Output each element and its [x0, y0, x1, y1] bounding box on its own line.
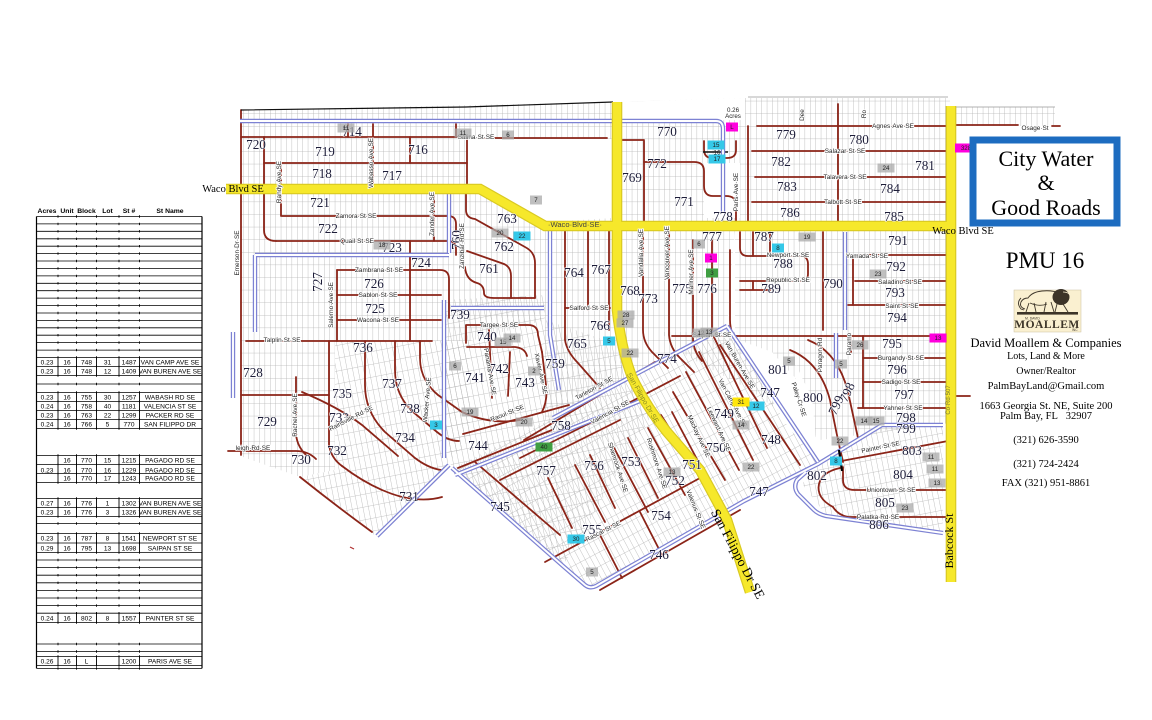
svg-text:2: 2: [532, 368, 536, 375]
svg-text:31: 31: [738, 399, 745, 406]
svg-text:16: 16: [63, 359, 71, 366]
svg-text:Dee: Dee: [799, 109, 806, 121]
svg-text:8: 8: [106, 615, 110, 622]
svg-text:11: 11: [343, 125, 350, 132]
svg-text:Lot: Lot: [102, 208, 113, 215]
svg-text:3: 3: [106, 509, 110, 516]
svg-text:VAN BUREN AVE SE: VAN BUREN AVE SE: [139, 368, 202, 375]
svg-text:761: 761: [479, 261, 499, 276]
svg-text:769: 769: [622, 170, 642, 185]
svg-text:0.23: 0.23: [41, 467, 54, 474]
svg-text:764: 764: [564, 265, 584, 280]
svg-text:&: &: [1037, 170, 1054, 195]
svg-text:Targee·St·SE: Targee·St·SE: [480, 322, 518, 329]
svg-text:1243: 1243: [122, 475, 137, 482]
svg-text:16: 16: [63, 545, 71, 552]
svg-text:Yamada·St·SE: Yamada·St·SE: [846, 253, 888, 260]
svg-text:758: 758: [81, 403, 92, 410]
svg-text:Wabasso·Ave·SE: Wabasso·Ave·SE: [368, 138, 375, 188]
svg-text:776: 776: [697, 281, 717, 296]
svg-text:David Moallem & Companies: David Moallem & Companies: [970, 336, 1121, 350]
svg-text:5: 5: [106, 421, 110, 428]
svg-text:Paragon·Rd: Paragon·Rd: [817, 337, 824, 372]
svg-text:746: 746: [649, 547, 669, 562]
svg-text:1557: 1557: [122, 615, 137, 622]
svg-text:16: 16: [104, 467, 112, 474]
svg-text:6: 6: [697, 241, 701, 248]
svg-text:737: 737: [382, 376, 402, 391]
svg-text:17: 17: [714, 156, 721, 163]
svg-text:755: 755: [81, 394, 92, 401]
svg-text:15: 15: [713, 142, 720, 149]
svg-text:783: 783: [777, 179, 797, 194]
svg-text:747: 747: [749, 484, 769, 499]
svg-text:1299: 1299: [122, 412, 137, 419]
svg-text:731: 731: [399, 489, 419, 504]
svg-text:787: 787: [754, 229, 774, 244]
svg-text:St #: St #: [123, 208, 136, 215]
svg-text:16: 16: [63, 658, 71, 665]
svg-text:leigh·Rd·SE: leigh·Rd·SE: [236, 445, 270, 452]
svg-text:14: 14: [738, 422, 745, 429]
svg-text:5: 5: [607, 338, 611, 345]
svg-text:1487: 1487: [122, 359, 137, 366]
svg-text:Salazar·St·SE: Salazar·St·SE: [825, 148, 866, 155]
svg-text:0.23: 0.23: [41, 535, 54, 542]
svg-text:727: 727: [310, 272, 325, 292]
svg-text:MOALLEM: MOALLEM: [1014, 319, 1079, 331]
svg-text:795: 795: [882, 336, 902, 351]
svg-text:0.23: 0.23: [41, 359, 54, 366]
svg-text:19: 19: [804, 234, 811, 241]
svg-text:16: 16: [63, 615, 71, 622]
svg-text:0.27: 0.27: [41, 500, 54, 507]
svg-text:13: 13: [706, 329, 713, 336]
svg-text:SAIPAN ST SE: SAIPAN ST SE: [148, 545, 193, 552]
svg-text:24: 24: [883, 165, 890, 172]
svg-text:0.24: 0.24: [41, 421, 54, 428]
svg-text:786: 786: [780, 205, 800, 220]
svg-text:16: 16: [63, 535, 71, 542]
svg-text:782: 782: [771, 154, 791, 169]
svg-text:744: 744: [468, 438, 488, 453]
svg-text:PACKER RD SE: PACKER RD SE: [146, 412, 195, 419]
svg-text:794: 794: [887, 310, 907, 325]
svg-text:751: 751: [682, 457, 702, 472]
svg-text:VAN CAMP AVE SE: VAN CAMP AVE SE: [141, 359, 200, 366]
svg-text:(321) 724-2424: (321) 724-2424: [1013, 459, 1079, 470]
svg-text:31: 31: [104, 359, 112, 366]
svg-text:0.23: 0.23: [41, 368, 54, 375]
svg-text:739: 739: [450, 307, 470, 322]
svg-text:Wacona·St·SE: Wacona·St·SE: [357, 317, 399, 324]
svg-text:804: 804: [893, 467, 913, 482]
svg-text:777: 777: [702, 229, 722, 244]
svg-text:0.26: 0.26: [41, 658, 54, 665]
svg-text:30: 30: [573, 536, 580, 543]
svg-text:16: 16: [63, 467, 71, 474]
svg-text:771: 771: [674, 194, 694, 209]
svg-text:805: 805: [875, 495, 895, 510]
svg-text:773: 773: [638, 291, 658, 306]
svg-text:13: 13: [104, 545, 112, 552]
svg-text:784: 784: [880, 181, 900, 196]
svg-text:22: 22: [837, 438, 844, 445]
svg-text:L: L: [85, 658, 89, 665]
svg-text:Mariner·Ave·SE: Mariner·Ave·SE: [688, 249, 695, 294]
svg-text:748: 748: [761, 432, 781, 447]
svg-text:Palatka·Rd·SE: Palatka·Rd·SE: [857, 514, 899, 521]
svg-text:753: 753: [621, 454, 641, 469]
svg-text:1: 1: [106, 500, 110, 507]
svg-text:1302: 1302: [122, 500, 137, 507]
svg-text:Good Roads: Good Roads: [991, 195, 1100, 220]
svg-text:PAGADO RD SE: PAGADO RD SE: [145, 467, 195, 474]
svg-text:1200: 1200: [122, 658, 137, 665]
svg-text:40: 40: [104, 403, 112, 410]
svg-text:763: 763: [497, 211, 517, 226]
svg-text:0.23: 0.23: [41, 509, 54, 516]
svg-text:1541: 1541: [122, 535, 137, 542]
svg-text:3: 3: [710, 270, 714, 277]
svg-text:L: L: [730, 124, 734, 131]
svg-text:18: 18: [379, 242, 386, 249]
svg-text:14: 14: [861, 418, 868, 425]
svg-text:Salerno·Ave·SE: Salerno·Ave·SE: [328, 282, 335, 328]
svg-text:787: 787: [81, 535, 92, 542]
svg-text:Babcock St: Babcock St: [942, 513, 956, 569]
svg-text:759: 759: [545, 356, 565, 371]
svg-text:11: 11: [460, 130, 467, 137]
svg-text:Newport·St·SE: Newport·St·SE: [767, 252, 810, 259]
svg-text:Uniontown·St·SE: Uniontown·St·SE: [866, 487, 915, 494]
svg-text:Owner/Realtor: Owner/Realtor: [1016, 366, 1076, 377]
svg-text:16: 16: [63, 412, 71, 419]
svg-text:VAN BUREN AVE SE: VAN BUREN AVE SE: [139, 509, 202, 516]
svg-text:795: 795: [81, 545, 92, 552]
svg-text:792: 792: [886, 259, 906, 274]
svg-text:770: 770: [81, 467, 92, 474]
svg-text:Ro: Ro: [861, 109, 868, 118]
svg-text:PalmBayLand@Gmail.com: PalmBayLand@Gmail.com: [988, 381, 1105, 392]
svg-text:15: 15: [873, 418, 880, 425]
svg-text:8: 8: [106, 535, 110, 542]
svg-text:23: 23: [902, 505, 909, 512]
svg-text:VAN BUREN AVE SE: VAN BUREN AVE SE: [139, 500, 202, 507]
svg-text:778: 778: [713, 209, 733, 224]
svg-text:718: 718: [312, 166, 332, 181]
svg-text:5: 5: [787, 358, 791, 365]
svg-text:(321) 626-3590: (321) 626-3590: [1013, 435, 1079, 446]
svg-text:726: 726: [364, 276, 384, 291]
svg-text:13: 13: [935, 335, 942, 342]
svg-text:0.23: 0.23: [41, 412, 54, 419]
svg-text:PAGADO RD SE: PAGADO RD SE: [145, 475, 195, 482]
svg-text:Rachel·Ave·SE: Rachel·Ave·SE: [292, 393, 299, 437]
svg-text:743: 743: [515, 375, 535, 390]
svg-text:800: 800: [803, 390, 823, 405]
svg-text:22: 22: [519, 233, 526, 240]
svg-text:722: 722: [318, 221, 338, 236]
svg-text:30: 30: [104, 394, 112, 401]
svg-text:1257: 1257: [122, 394, 137, 401]
svg-text:1215: 1215: [122, 457, 137, 464]
svg-text:8: 8: [776, 245, 780, 252]
svg-text:28: 28: [623, 312, 630, 319]
svg-text:Acres: Acres: [725, 113, 741, 120]
svg-text:19: 19: [467, 409, 474, 416]
svg-text:NEWPORT ST SE: NEWPORT ST SE: [143, 535, 198, 542]
svg-text:0.23: 0.23: [41, 394, 54, 401]
svg-text:719: 719: [315, 144, 335, 159]
svg-text:Quail·St·SE: Quail·St·SE: [340, 238, 374, 245]
svg-text:Emerson·Dr·SE: Emerson·Dr·SE: [234, 230, 241, 275]
svg-text:Palm Bay, FL 32907: Palm Bay, FL 32907: [1000, 411, 1092, 422]
svg-text:Lots, Land & More: Lots, Land & More: [1007, 351, 1085, 362]
svg-text:803: 803: [902, 443, 922, 458]
svg-text:Talbott·St·SE: Talbott·St·SE: [824, 199, 862, 206]
svg-text:27: 27: [622, 320, 629, 327]
svg-text:Yahner·St·SE: Yahner·St·SE: [884, 405, 923, 412]
svg-text:767: 767: [591, 262, 611, 277]
svg-text:6: 6: [453, 363, 457, 370]
svg-text:0.24: 0.24: [41, 615, 54, 622]
svg-text:Talplin·St·SE: Talplin·St·SE: [264, 337, 301, 344]
svg-text:763: 763: [81, 412, 92, 419]
svg-text:1409: 1409: [122, 368, 137, 375]
svg-text:725: 725: [365, 301, 385, 316]
svg-text:1: 1: [709, 255, 713, 262]
svg-text:16: 16: [63, 475, 71, 482]
svg-text:716: 716: [408, 142, 428, 157]
svg-text:Burgandy·St·SE: Burgandy·St·SE: [878, 355, 924, 362]
svg-text:728: 728: [243, 365, 263, 380]
svg-text:6: 6: [506, 132, 510, 139]
svg-text:11: 11: [932, 466, 939, 473]
svg-text:717: 717: [382, 168, 402, 183]
svg-text:11: 11: [928, 454, 935, 461]
svg-text:Acres: Acres: [38, 208, 57, 215]
svg-text:790: 790: [823, 276, 843, 291]
svg-text:720: 720: [246, 137, 266, 152]
svg-text:PAGADO RD SE: PAGADO RD SE: [145, 457, 195, 464]
svg-text:780: 780: [849, 132, 869, 147]
svg-text:770: 770: [81, 457, 92, 464]
svg-text:730: 730: [291, 452, 311, 467]
svg-text:FAX (321) 951-8861: FAX (321) 951-8861: [1002, 478, 1090, 489]
svg-text:Sablon·St·SE: Sablon·St·SE: [359, 292, 398, 299]
svg-text:17: 17: [104, 475, 112, 482]
svg-text:757: 757: [536, 463, 556, 478]
svg-text:785: 785: [884, 209, 904, 224]
svg-text:VALENCIA ST SE: VALENCIA ST SE: [144, 403, 197, 410]
svg-text:PAINTER ST SE: PAINTER ST SE: [146, 615, 195, 622]
svg-text:16: 16: [63, 509, 71, 516]
svg-text:1229: 1229: [122, 467, 137, 474]
svg-text:762: 762: [494, 239, 514, 254]
svg-text:766: 766: [81, 421, 92, 428]
svg-text:776: 776: [81, 509, 92, 516]
svg-text:Co·Rd·507: Co·Rd·507: [946, 385, 952, 415]
svg-text:Waco Blvd SE: Waco Blvd SE: [202, 184, 264, 195]
svg-text:747: 747: [760, 385, 780, 400]
svg-text:741: 741: [465, 370, 485, 385]
svg-text:20: 20: [497, 230, 504, 237]
svg-text:0.29: 0.29: [41, 545, 54, 552]
svg-text:770: 770: [81, 475, 92, 482]
svg-text:791: 791: [888, 233, 908, 248]
svg-text:Zamora·St·SE: Zamora·St·SE: [336, 213, 377, 220]
svg-text:770: 770: [123, 421, 134, 428]
svg-text:758: 758: [551, 418, 571, 433]
svg-text:Saint·St·SE: Saint·St·SE: [885, 303, 918, 310]
svg-text:Talavera·St·SE: Talavera·St·SE: [824, 174, 867, 181]
svg-text:Saladino·St·SE: Saladino·St·SE: [878, 279, 922, 286]
svg-text:12: 12: [104, 368, 112, 375]
svg-text:16: 16: [63, 500, 71, 507]
svg-text:766: 766: [590, 318, 610, 333]
svg-text:748: 748: [81, 359, 92, 366]
svg-text:729: 729: [257, 414, 277, 429]
svg-text:754: 754: [651, 508, 671, 523]
svg-text:Zanzibar·Rd·SE: Zanzibar·Rd·SE: [459, 223, 466, 269]
svg-text:765: 765: [567, 336, 587, 351]
svg-text:Republic·St·SE: Republic·St·SE: [766, 277, 810, 284]
svg-text:PARIS AVE SE: PARIS AVE SE: [148, 658, 193, 665]
svg-text:Block: Block: [77, 208, 96, 215]
svg-text:721: 721: [310, 195, 330, 210]
svg-text:724: 724: [411, 255, 431, 270]
svg-text:City Water: City Water: [999, 146, 1095, 171]
svg-text:26: 26: [857, 342, 864, 349]
svg-text:PMU 16: PMU 16: [1006, 248, 1085, 273]
svg-text:748: 748: [81, 368, 92, 375]
svg-text:INC: INC: [1072, 328, 1078, 332]
svg-text:799: 799: [896, 421, 916, 436]
svg-text:1698: 1698: [122, 545, 137, 552]
svg-text:22: 22: [748, 464, 755, 471]
svg-text:40: 40: [541, 444, 548, 451]
svg-text:SAN FILIPPO DR: SAN FILIPPO DR: [144, 421, 196, 428]
svg-text:16: 16: [63, 394, 71, 401]
svg-text:738: 738: [400, 401, 420, 416]
svg-text:Zander·Ave·SE: Zander·Ave·SE: [429, 192, 436, 236]
svg-text:·Waco·Blvd·SE·: ·Waco·Blvd·SE·: [548, 220, 602, 229]
svg-text:16: 16: [63, 368, 71, 375]
svg-text:12: 12: [753, 403, 760, 410]
svg-text:13: 13: [669, 469, 676, 476]
svg-text:WABASH RD SE: WABASH RD SE: [145, 394, 196, 401]
svg-text:1181: 1181: [122, 403, 137, 410]
svg-text:Vandalia·Ave·SE: Vandalia·Ave·SE: [638, 229, 645, 277]
svg-text:8: 8: [834, 458, 838, 465]
svg-text:779: 779: [776, 127, 796, 142]
svg-text:802: 802: [807, 468, 827, 483]
svg-text:15: 15: [104, 457, 112, 464]
svg-text:Zambrana·St·SE: Zambrana·St·SE: [355, 267, 403, 274]
svg-text:756: 756: [584, 458, 604, 473]
svg-text:16: 16: [63, 457, 71, 464]
svg-text:734: 734: [395, 430, 415, 445]
svg-text:Agnes·Ave·SE: Agnes·Ave·SE: [872, 123, 914, 130]
svg-text:Waco Blvd SE: Waco Blvd SE: [932, 226, 994, 237]
svg-text:Unit: Unit: [60, 208, 74, 215]
svg-text:793: 793: [885, 285, 905, 300]
svg-text:13: 13: [934, 480, 941, 487]
svg-text:740: 740: [477, 329, 497, 344]
svg-text:Paris·Ave·SE: Paris·Ave·SE: [733, 173, 740, 211]
svg-text:0.24: 0.24: [41, 403, 54, 410]
svg-text:776: 776: [81, 500, 92, 507]
svg-text:796: 796: [887, 362, 907, 377]
svg-text:797: 797: [894, 387, 914, 402]
svg-text:22: 22: [627, 350, 634, 357]
svg-text:14: 14: [509, 335, 516, 342]
svg-text:1326: 1326: [122, 509, 137, 516]
svg-text:16: 16: [63, 421, 71, 428]
svg-text:732: 732: [327, 443, 347, 458]
svg-text:Vancouver·Ave·SE: Vancouver·Ave·SE: [664, 226, 671, 280]
svg-text:5: 5: [590, 569, 594, 576]
svg-text:22: 22: [104, 412, 112, 419]
svg-text:745: 745: [490, 499, 510, 514]
svg-text:772: 772: [647, 156, 667, 171]
svg-text:774: 774: [657, 351, 677, 366]
svg-text:St Name: St Name: [156, 208, 183, 215]
svg-text:Sadigo·St·SE: Sadigo·St·SE: [882, 379, 921, 386]
svg-text:781: 781: [915, 158, 935, 173]
svg-text:Randy·Ave·SE: Randy·Ave·SE: [276, 161, 283, 203]
svg-text:3: 3: [434, 422, 438, 429]
svg-text:Osage·St: Osage·St: [1022, 125, 1049, 132]
svg-text:5: 5: [839, 361, 843, 368]
svg-text:7: 7: [534, 197, 538, 204]
svg-text:802: 802: [81, 615, 92, 622]
svg-text:Salford·St·SE: Salford·St·SE: [569, 305, 608, 312]
svg-text:735: 735: [332, 386, 352, 401]
svg-text:23: 23: [875, 271, 882, 278]
svg-text:770: 770: [657, 124, 677, 139]
svg-text:736: 736: [353, 340, 373, 355]
svg-text:16: 16: [63, 403, 71, 410]
svg-text:20: 20: [521, 419, 528, 426]
